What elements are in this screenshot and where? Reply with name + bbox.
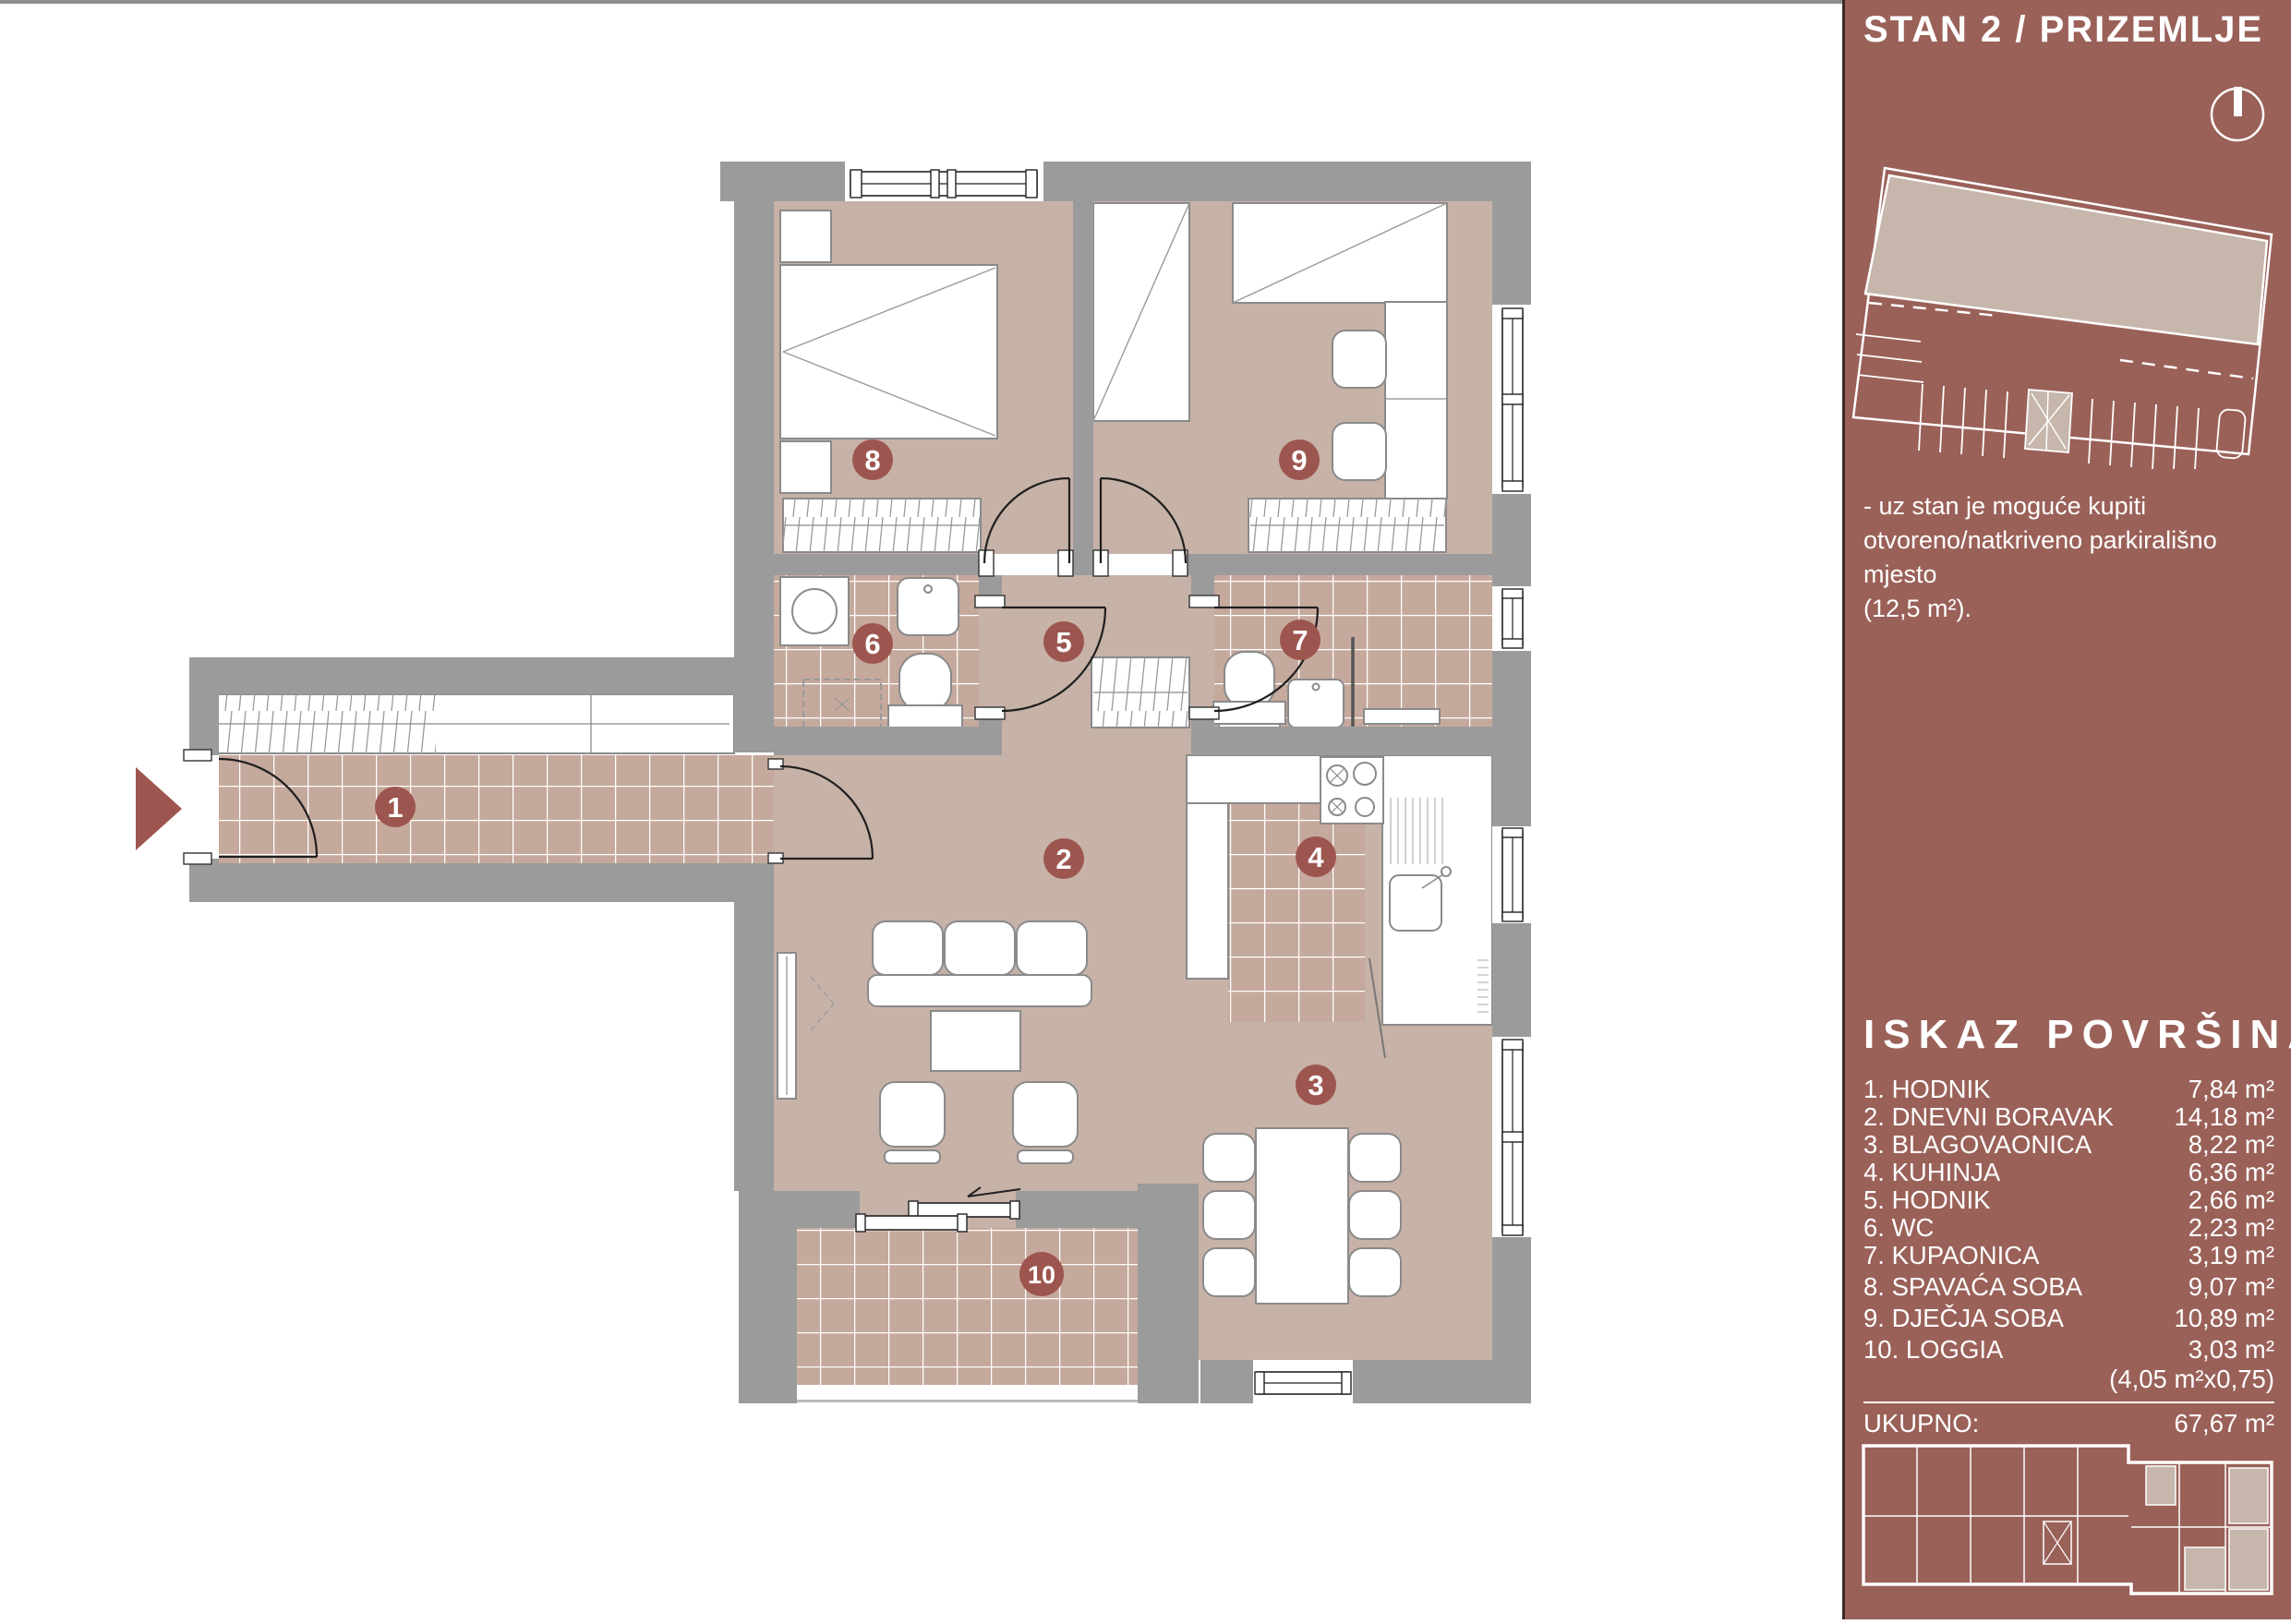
- badge-6: 6: [864, 628, 880, 660]
- site-plan: [1851, 157, 2291, 475]
- room-label: 6. WC: [1863, 1213, 1934, 1241]
- room-area: 2,23 m²: [2189, 1213, 2274, 1241]
- nightstand: [780, 211, 831, 262]
- room-label: 5. HODNIK: [1863, 1185, 1991, 1213]
- room-area: 6,36 m²: [2189, 1158, 2274, 1185]
- badge-1: 1: [387, 791, 403, 824]
- kitchen-sink: [1390, 875, 1441, 931]
- parking-note-line: otvoreno/natkriveno parkirališno mjesto: [1863, 523, 2274, 592]
- room-label: 8. SPAVAĆA SOBA: [1863, 1272, 2082, 1300]
- room-area: 7,84 m²: [2189, 1075, 2274, 1102]
- dining-chair: [1203, 1134, 1255, 1182]
- armchair: [1013, 1082, 1078, 1147]
- floor-plan-svg: 1 2 3 4 5 6 7 8 9 10: [0, 0, 1842, 1619]
- loggia-parapet: [797, 1385, 1138, 1402]
- info-sidebar: STAN 2 / PRIZEMLJE - uz stan je moguće k…: [1842, 0, 2291, 1619]
- badge-10: 10: [1028, 1261, 1055, 1289]
- washing-machine: [780, 577, 849, 645]
- entrance-arrow: [136, 767, 182, 850]
- room-label: 7. KUPAONICA: [1863, 1241, 2040, 1269]
- building-key-plan: [1854, 1437, 2284, 1603]
- bath-sink: [1288, 680, 1344, 728]
- nightstand: [780, 441, 831, 493]
- room-label: 10. LOGGIA: [1863, 1335, 2003, 1363]
- chair: [1332, 423, 1386, 480]
- room-area: 3,19 m²: [2189, 1241, 2274, 1269]
- room-label: 2. DNEVNI BORAVAK: [1863, 1102, 2114, 1130]
- double-bed: [780, 265, 997, 439]
- dining-chair: [1203, 1248, 1255, 1296]
- desk: [1385, 302, 1447, 499]
- total-value: 67,67 m²: [2174, 1409, 2274, 1438]
- room-area: 3,03 m²: [2189, 1335, 2274, 1363]
- coffee-table: [931, 1011, 1020, 1071]
- badge-5: 5: [1055, 626, 1071, 658]
- parking-note-line: (12,5 m²).: [1863, 592, 2274, 626]
- room-label: 9. DJEČJA SOBA: [1863, 1304, 2064, 1331]
- area-row: 9. DJEČJA SOBA10,89 m²: [1863, 1304, 2274, 1331]
- dining-chair: [1349, 1248, 1401, 1296]
- chair: [1332, 331, 1386, 388]
- loggia-tiles: [797, 1228, 1138, 1388]
- wc-sink: [898, 578, 959, 635]
- corridor-tiles: [219, 755, 774, 863]
- badge-2: 2: [1055, 843, 1071, 875]
- wc-toilet: [899, 654, 951, 711]
- loggia-factor-note: (4,05 m²x0,75): [1863, 1365, 2274, 1394]
- north-icon: [2208, 79, 2267, 144]
- armchair: [880, 1082, 945, 1147]
- area-row: 10. LOGGIA3,03 m²: [1863, 1335, 2274, 1363]
- area-row: 5. HODNIK2,66 m²: [1863, 1185, 2274, 1213]
- dining-table: [1256, 1128, 1348, 1304]
- bath-shelf: [1364, 709, 1440, 724]
- room-label: 4. KUHINJA: [1863, 1158, 2000, 1185]
- bath-toilet: [1224, 652, 1274, 707]
- area-row: 2. DNEVNI BORAVAK14,18 m²: [1863, 1102, 2274, 1130]
- badge-4: 4: [1308, 841, 1324, 873]
- total-row: UKUPNO: 67,67 m²: [1863, 1401, 2274, 1438]
- area-row: 1. HODNIK7,84 m²: [1863, 1075, 2274, 1102]
- dining-chair: [1349, 1191, 1401, 1239]
- badge-9: 9: [1291, 444, 1307, 476]
- dining-chair: [1349, 1134, 1401, 1182]
- badge-8: 8: [864, 444, 880, 476]
- room-label: 1. HODNIK: [1863, 1075, 1991, 1102]
- sofa-cushion: [873, 921, 943, 975]
- total-label: UKUPNO:: [1863, 1409, 1979, 1438]
- area-row: 7. KUPAONICA3,19 m²: [1863, 1241, 2274, 1269]
- area-row: 3. BLAGOVAONICA8,22 m²: [1863, 1130, 2274, 1158]
- room-area: 2,66 m²: [2189, 1185, 2274, 1213]
- room-area: 14,18 m²: [2174, 1102, 2274, 1130]
- area-row: 6. WC2,23 m²: [1863, 1213, 2274, 1241]
- room-area: 8,22 m²: [2189, 1130, 2274, 1158]
- parking-note-line: - uz stan je moguće kupiti: [1863, 489, 2274, 523]
- floor-plan: 1 2 3 4 5 6 7 8 9 10: [0, 0, 1842, 1619]
- room-area: 9,07 m²: [2189, 1272, 2274, 1300]
- badge-3: 3: [1308, 1069, 1323, 1101]
- area-row: 4. KUHINJA6,36 m²: [1863, 1158, 2274, 1185]
- area-row: 8. SPAVAĆA SOBA9,07 m²: [1863, 1272, 2274, 1300]
- parking-note: - uz stan je moguće kupiti otvoreno/natk…: [1863, 489, 2274, 626]
- room-area: 10,89 m²: [2174, 1304, 2274, 1331]
- areas-list: ISKAZ POVRŠINA: 1. HODNIK7,84 m² 2. DNEV…: [1863, 1012, 2274, 1438]
- dining-chair: [1203, 1191, 1255, 1239]
- sofa-cushion: [1017, 921, 1087, 975]
- sofa-cushion: [945, 921, 1015, 975]
- badge-7: 7: [1292, 624, 1308, 656]
- kitchen-tiles: [1228, 803, 1365, 1022]
- room-label: 3. BLAGOVAONICA: [1863, 1130, 2092, 1158]
- sofa-seat: [868, 975, 1091, 1006]
- areas-heading: ISKAZ POVRŠINA:: [1863, 1012, 2274, 1058]
- apartment-title: STAN 2 / PRIZEMLJE: [1863, 9, 2263, 51]
- kitchen-cabinet: [1187, 803, 1228, 979]
